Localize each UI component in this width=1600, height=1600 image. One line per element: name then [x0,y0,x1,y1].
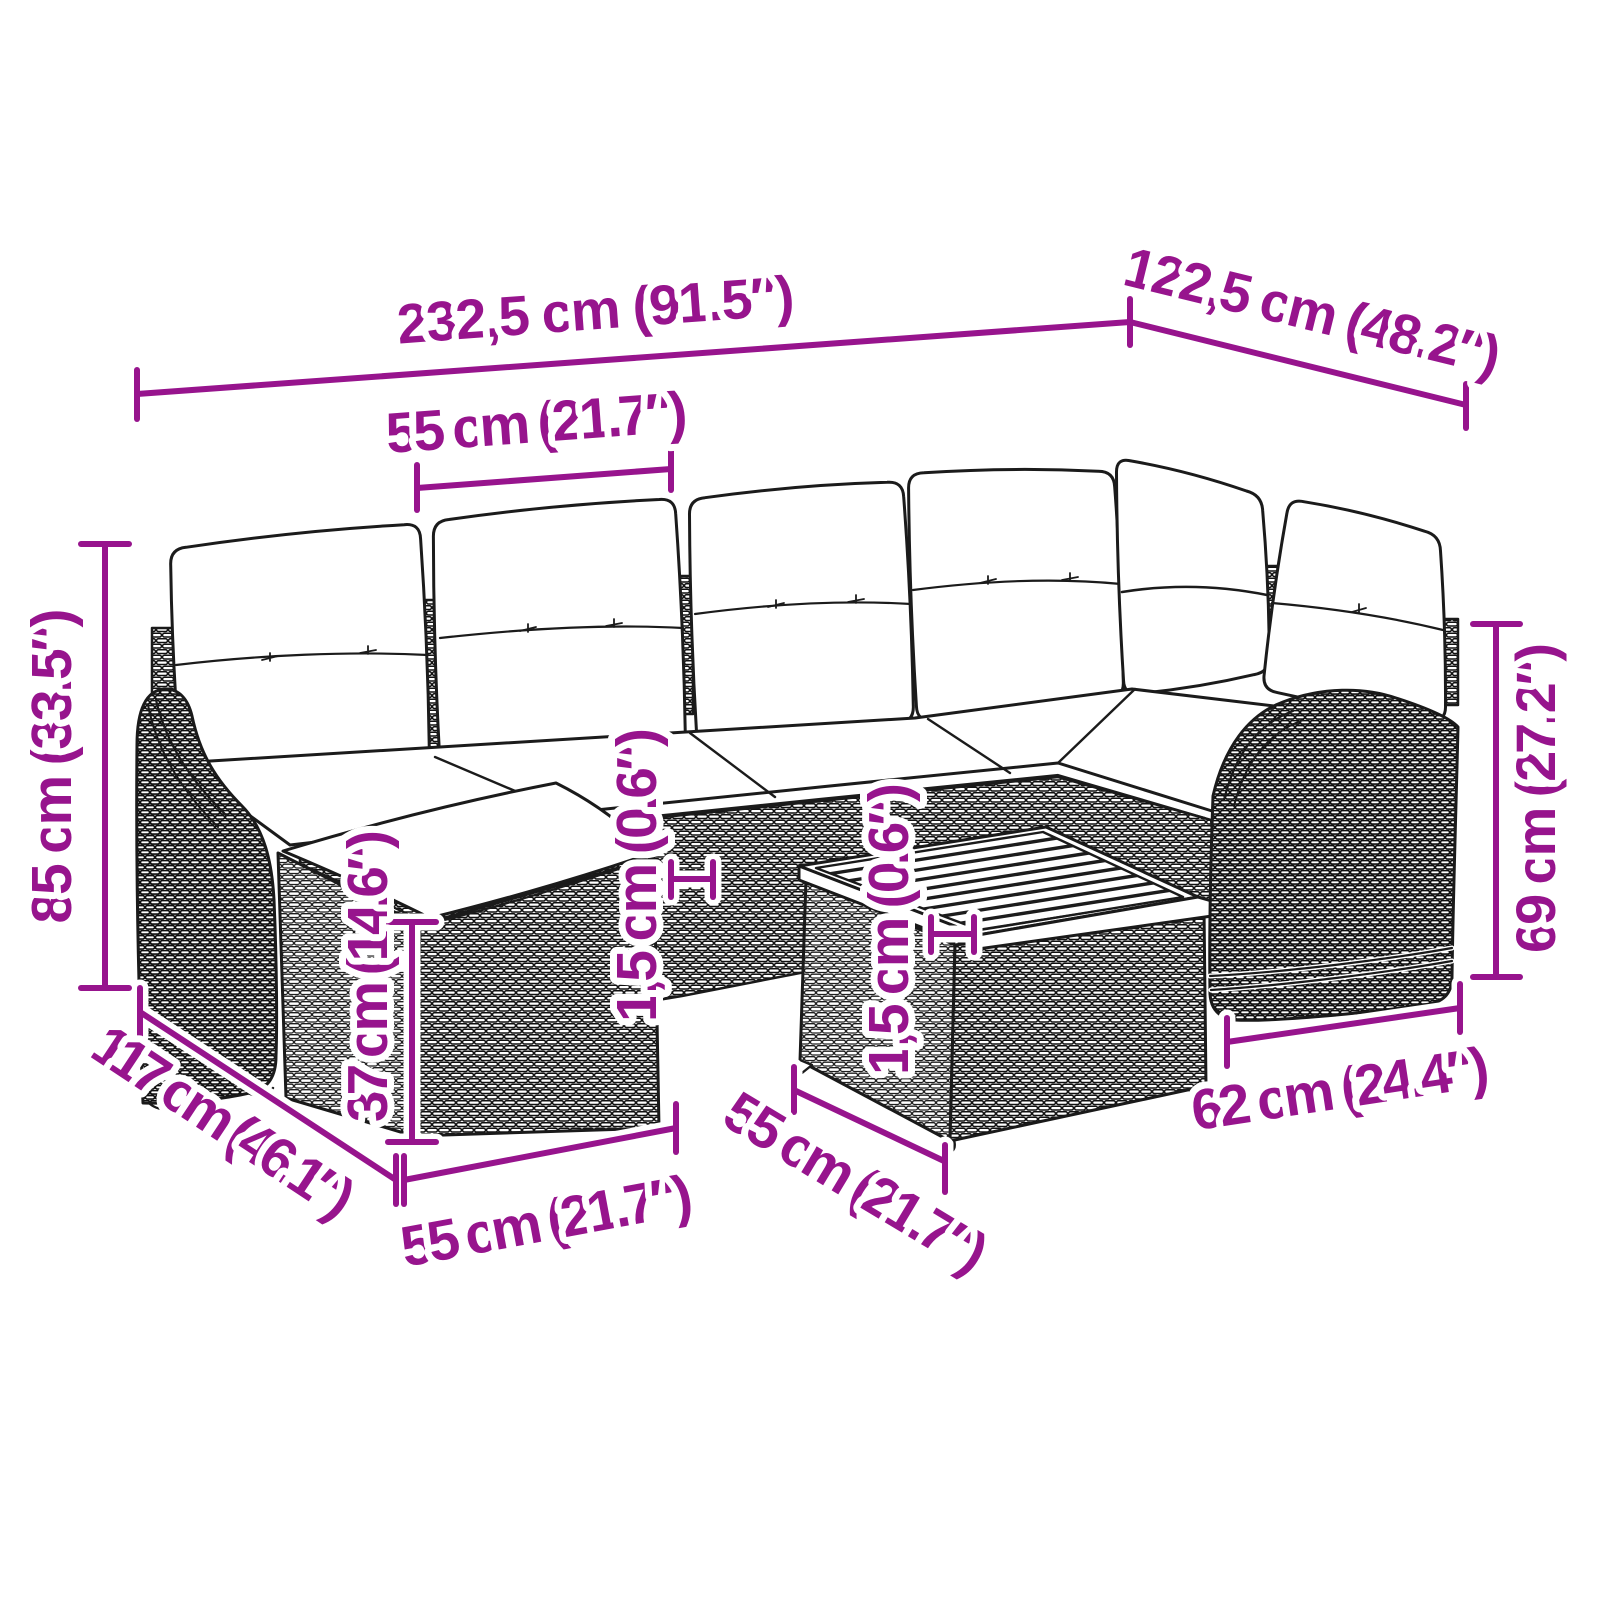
svg-text:37 cm (14.6″): 37 cm (14.6″) [336,830,400,1122]
svg-text:1,5 cm (0.6″): 1,5 cm (0.6″) [605,728,669,1022]
svg-text:69 cm (27.2″): 69 cm (27.2″) [1504,643,1567,953]
svg-text:1,5 cm (0.6″): 1,5 cm (0.6″) [857,783,921,1075]
svg-text:85 cm (33.5″): 85 cm (33.5″) [20,609,84,924]
